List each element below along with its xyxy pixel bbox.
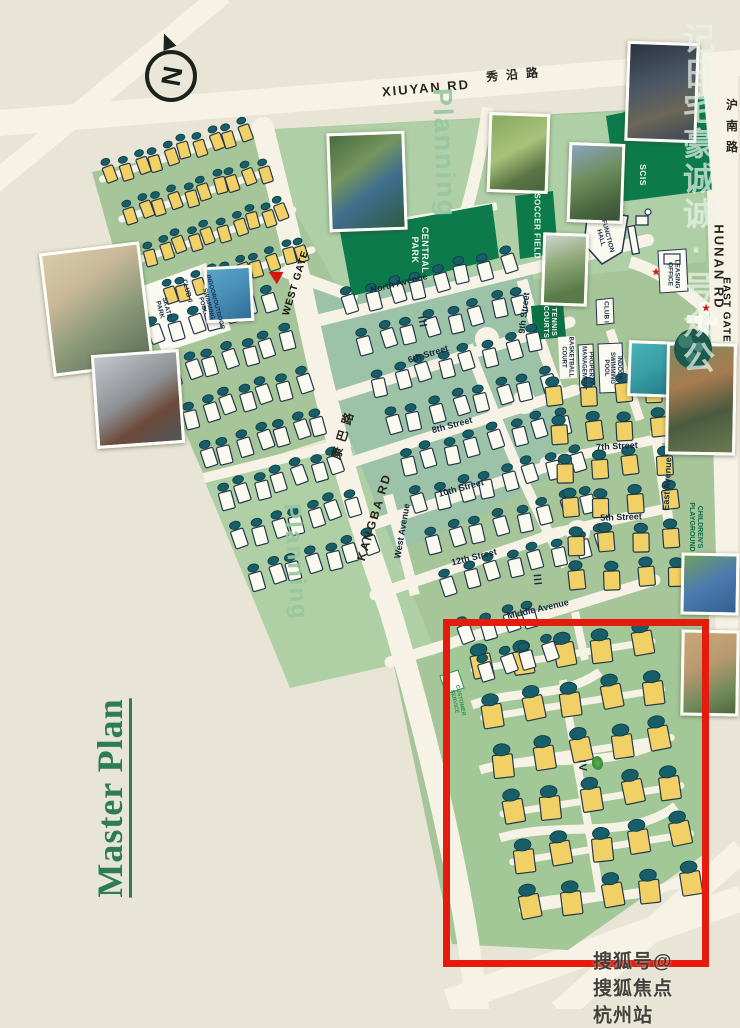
house-east-townhomes	[633, 523, 650, 552]
indoor-pool-label: INDOOR SWIMMING POOL	[602, 352, 622, 384]
compass-icon: N	[145, 50, 197, 102]
photo-street-trees	[541, 232, 590, 307]
leasing-office-star-icon: ★	[651, 268, 661, 279]
photo-pond-trees	[326, 131, 407, 233]
house-east-townhomes	[591, 449, 609, 479]
planning-area-north: Planning	[426, 87, 462, 218]
house-east-townhomes	[603, 561, 620, 590]
phase-iii-marker-b: III	[530, 573, 543, 586]
page-title: Master Plan	[89, 698, 131, 897]
basketball-court-label: BASKETBALL COURT	[560, 337, 573, 378]
watermark-bottom: 搜狐号@搜狐焦点杭州站	[593, 947, 691, 1028]
house-east-townhomes	[557, 454, 574, 483]
photo-resident-activity	[91, 349, 185, 449]
watermark-side: 记日宅豪诚诚·号众公	[681, 22, 713, 376]
property-management-label: PROPERTY MANAGEMENT	[580, 346, 593, 390]
house-east-townhomes	[662, 518, 680, 548]
soccer-field-label: SOCCER FIELD	[533, 193, 542, 259]
tennis-courts-label: TENNIS COURTS	[541, 306, 557, 339]
house-east-townhomes	[626, 484, 644, 514]
hunan-rd-cn-label: 沪南路	[724, 99, 740, 162]
street-5th: 5th Street	[600, 511, 642, 522]
photo-house-with-trees	[567, 142, 626, 224]
east-gate-label: EAST GATE	[721, 277, 732, 342]
phase-iv-marker: IV	[575, 759, 588, 772]
central-park-label: CENTRAL PARK	[410, 227, 430, 274]
house-east-townhomes	[568, 527, 585, 556]
compass-north-letter: N	[154, 64, 188, 89]
phase-iii-marker-a: III	[415, 315, 429, 329]
scis-label: SCIS	[638, 164, 648, 186]
photo-playground	[680, 552, 739, 615]
photo-kids-on-lawn	[487, 112, 551, 194]
phase-highlight-box	[443, 619, 709, 967]
master-plan-page: { "title": { "master_plan": "Master Plan…	[0, 0, 740, 1009]
house-east-townhomes	[615, 412, 632, 442]
childrens-playground-label: CHILDREN'S PLAYGROUND	[687, 502, 703, 551]
house-east-townhomes	[550, 415, 568, 445]
club-i-label: CLUB I	[603, 301, 610, 323]
